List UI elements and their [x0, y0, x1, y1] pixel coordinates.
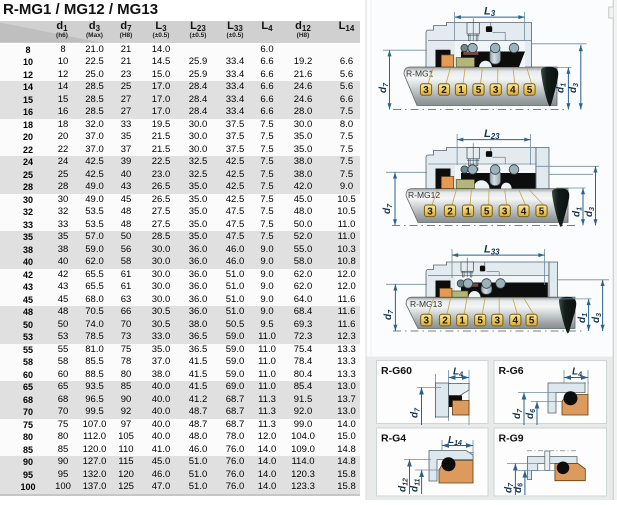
svg-text:3: 3	[427, 206, 433, 217]
svg-text:1: 1	[465, 206, 471, 217]
svg-text:3: 3	[423, 85, 429, 96]
svg-text:5: 5	[529, 316, 535, 327]
svg-text:2: 2	[447, 206, 453, 217]
svg-text:1: 1	[459, 316, 465, 327]
svg-text:1: 1	[458, 85, 464, 96]
svg-text:R-G4: R-G4	[381, 433, 406, 445]
svg-text:2: 2	[441, 85, 447, 96]
svg-text:R-G60: R-G60	[381, 365, 412, 377]
svg-text:3: 3	[502, 206, 508, 217]
svg-text:5: 5	[484, 206, 490, 217]
svg-text:4: 4	[521, 206, 527, 217]
svg-text:R-MG13: R-MG13	[410, 299, 442, 309]
svg-text:5: 5	[477, 316, 483, 327]
svg-text:R-G6: R-G6	[499, 365, 524, 377]
svg-text:R-MG1: R-MG1	[406, 69, 434, 79]
svg-text:3: 3	[424, 316, 430, 327]
svg-text:4: 4	[513, 316, 519, 327]
svg-text:5: 5	[476, 85, 482, 96]
svg-text:2: 2	[442, 316, 448, 327]
svg-text:3: 3	[495, 316, 501, 327]
svg-text:3: 3	[493, 85, 499, 96]
svg-text:5: 5	[539, 206, 545, 217]
svg-text:4: 4	[510, 85, 516, 96]
svg-text:R-G9: R-G9	[499, 433, 524, 445]
svg-text:5: 5	[527, 85, 533, 96]
